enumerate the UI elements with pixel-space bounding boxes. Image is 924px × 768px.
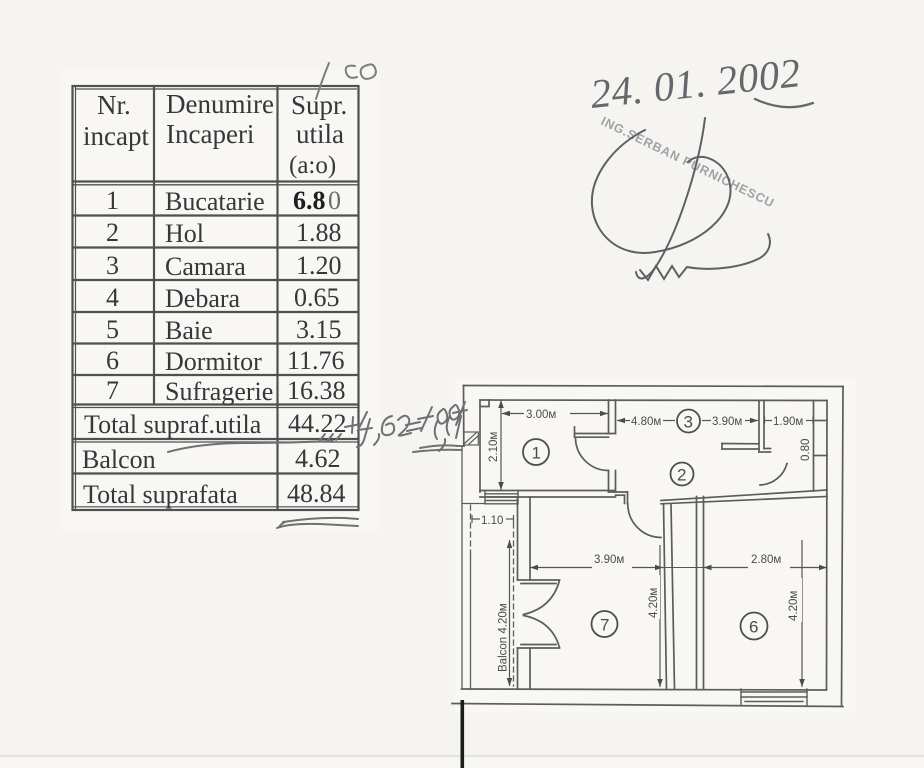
svg-text:Supr.: Supr.: [291, 90, 347, 120]
svg-text:Dormitor: Dormitor: [165, 347, 262, 376]
svg-text:4: 4: [106, 283, 119, 312]
svg-text:Balcon 4.20м: Balcon 4.20м: [498, 603, 510, 672]
svg-text:0.80: 0.80: [800, 439, 812, 461]
svg-text:6: 6: [749, 618, 758, 637]
svg-text:7: 7: [600, 616, 609, 635]
svg-text:0.65: 0.65: [294, 283, 340, 312]
svg-text:48.84: 48.84: [287, 479, 346, 508]
svg-text:3: 3: [684, 413, 693, 432]
svg-text:Camara: Camara: [165, 252, 246, 281]
svg-text:6.8: 6.8: [293, 186, 326, 215]
svg-text:3.15: 3.15: [296, 315, 342, 344]
svg-text:(a:o): (a:o): [289, 152, 336, 179]
svg-text:11.76: 11.76: [287, 346, 345, 375]
svg-text:4.20м: 4.20м: [648, 588, 660, 618]
svg-text:Denumire: Denumire: [166, 89, 274, 119]
svg-text:0: 0: [328, 186, 341, 215]
svg-text:Baie: Baie: [165, 316, 213, 345]
svg-text:1: 1: [532, 444, 541, 463]
svg-text:1.88: 1.88: [296, 218, 342, 247]
svg-text:Incaperi: Incaperi: [166, 119, 254, 149]
svg-text:3: 3: [106, 251, 119, 280]
svg-text:6: 6: [106, 346, 119, 375]
svg-text:1.20: 1.20: [296, 251, 342, 280]
svg-text:16.38: 16.38: [287, 376, 346, 405]
svg-text:4.80м: 4.80м: [631, 416, 661, 428]
svg-text:44.22: 44.22: [288, 409, 347, 438]
svg-text:2: 2: [106, 218, 119, 247]
svg-text:Total supraf.utila: Total supraf.utila: [84, 410, 262, 439]
svg-text:2: 2: [677, 466, 686, 485]
svg-text:2.10м: 2.10м: [488, 432, 500, 462]
svg-text:3.90м: 3.90м: [712, 416, 742, 428]
svg-text:Nr.: Nr.: [97, 90, 131, 120]
svg-text:2.80м: 2.80м: [751, 554, 781, 566]
svg-text:3.90м: 3.90м: [594, 554, 624, 566]
svg-text:7: 7: [106, 376, 119, 405]
svg-text:1: 1: [106, 186, 119, 215]
svg-text:Total suprafata: Total suprafata: [83, 480, 238, 509]
svg-text:incapt: incapt: [83, 121, 149, 151]
svg-text:Debara: Debara: [165, 284, 241, 313]
svg-text:1.90м: 1.90м: [773, 416, 803, 428]
svg-text:Bucatarie: Bucatarie: [165, 187, 265, 216]
svg-text:4.62: 4.62: [295, 444, 341, 473]
svg-text:4.20м: 4.20м: [788, 591, 800, 621]
svg-text:1.10: 1.10: [481, 515, 503, 527]
svg-text:Balcon: Balcon: [82, 445, 156, 474]
svg-text:utila: utila: [296, 119, 344, 149]
svg-text:Hol: Hol: [165, 219, 204, 248]
svg-text:5: 5: [106, 315, 119, 344]
svg-text:Sufragerie: Sufragerie: [165, 377, 273, 406]
svg-text:3.00м: 3.00м: [526, 409, 556, 421]
